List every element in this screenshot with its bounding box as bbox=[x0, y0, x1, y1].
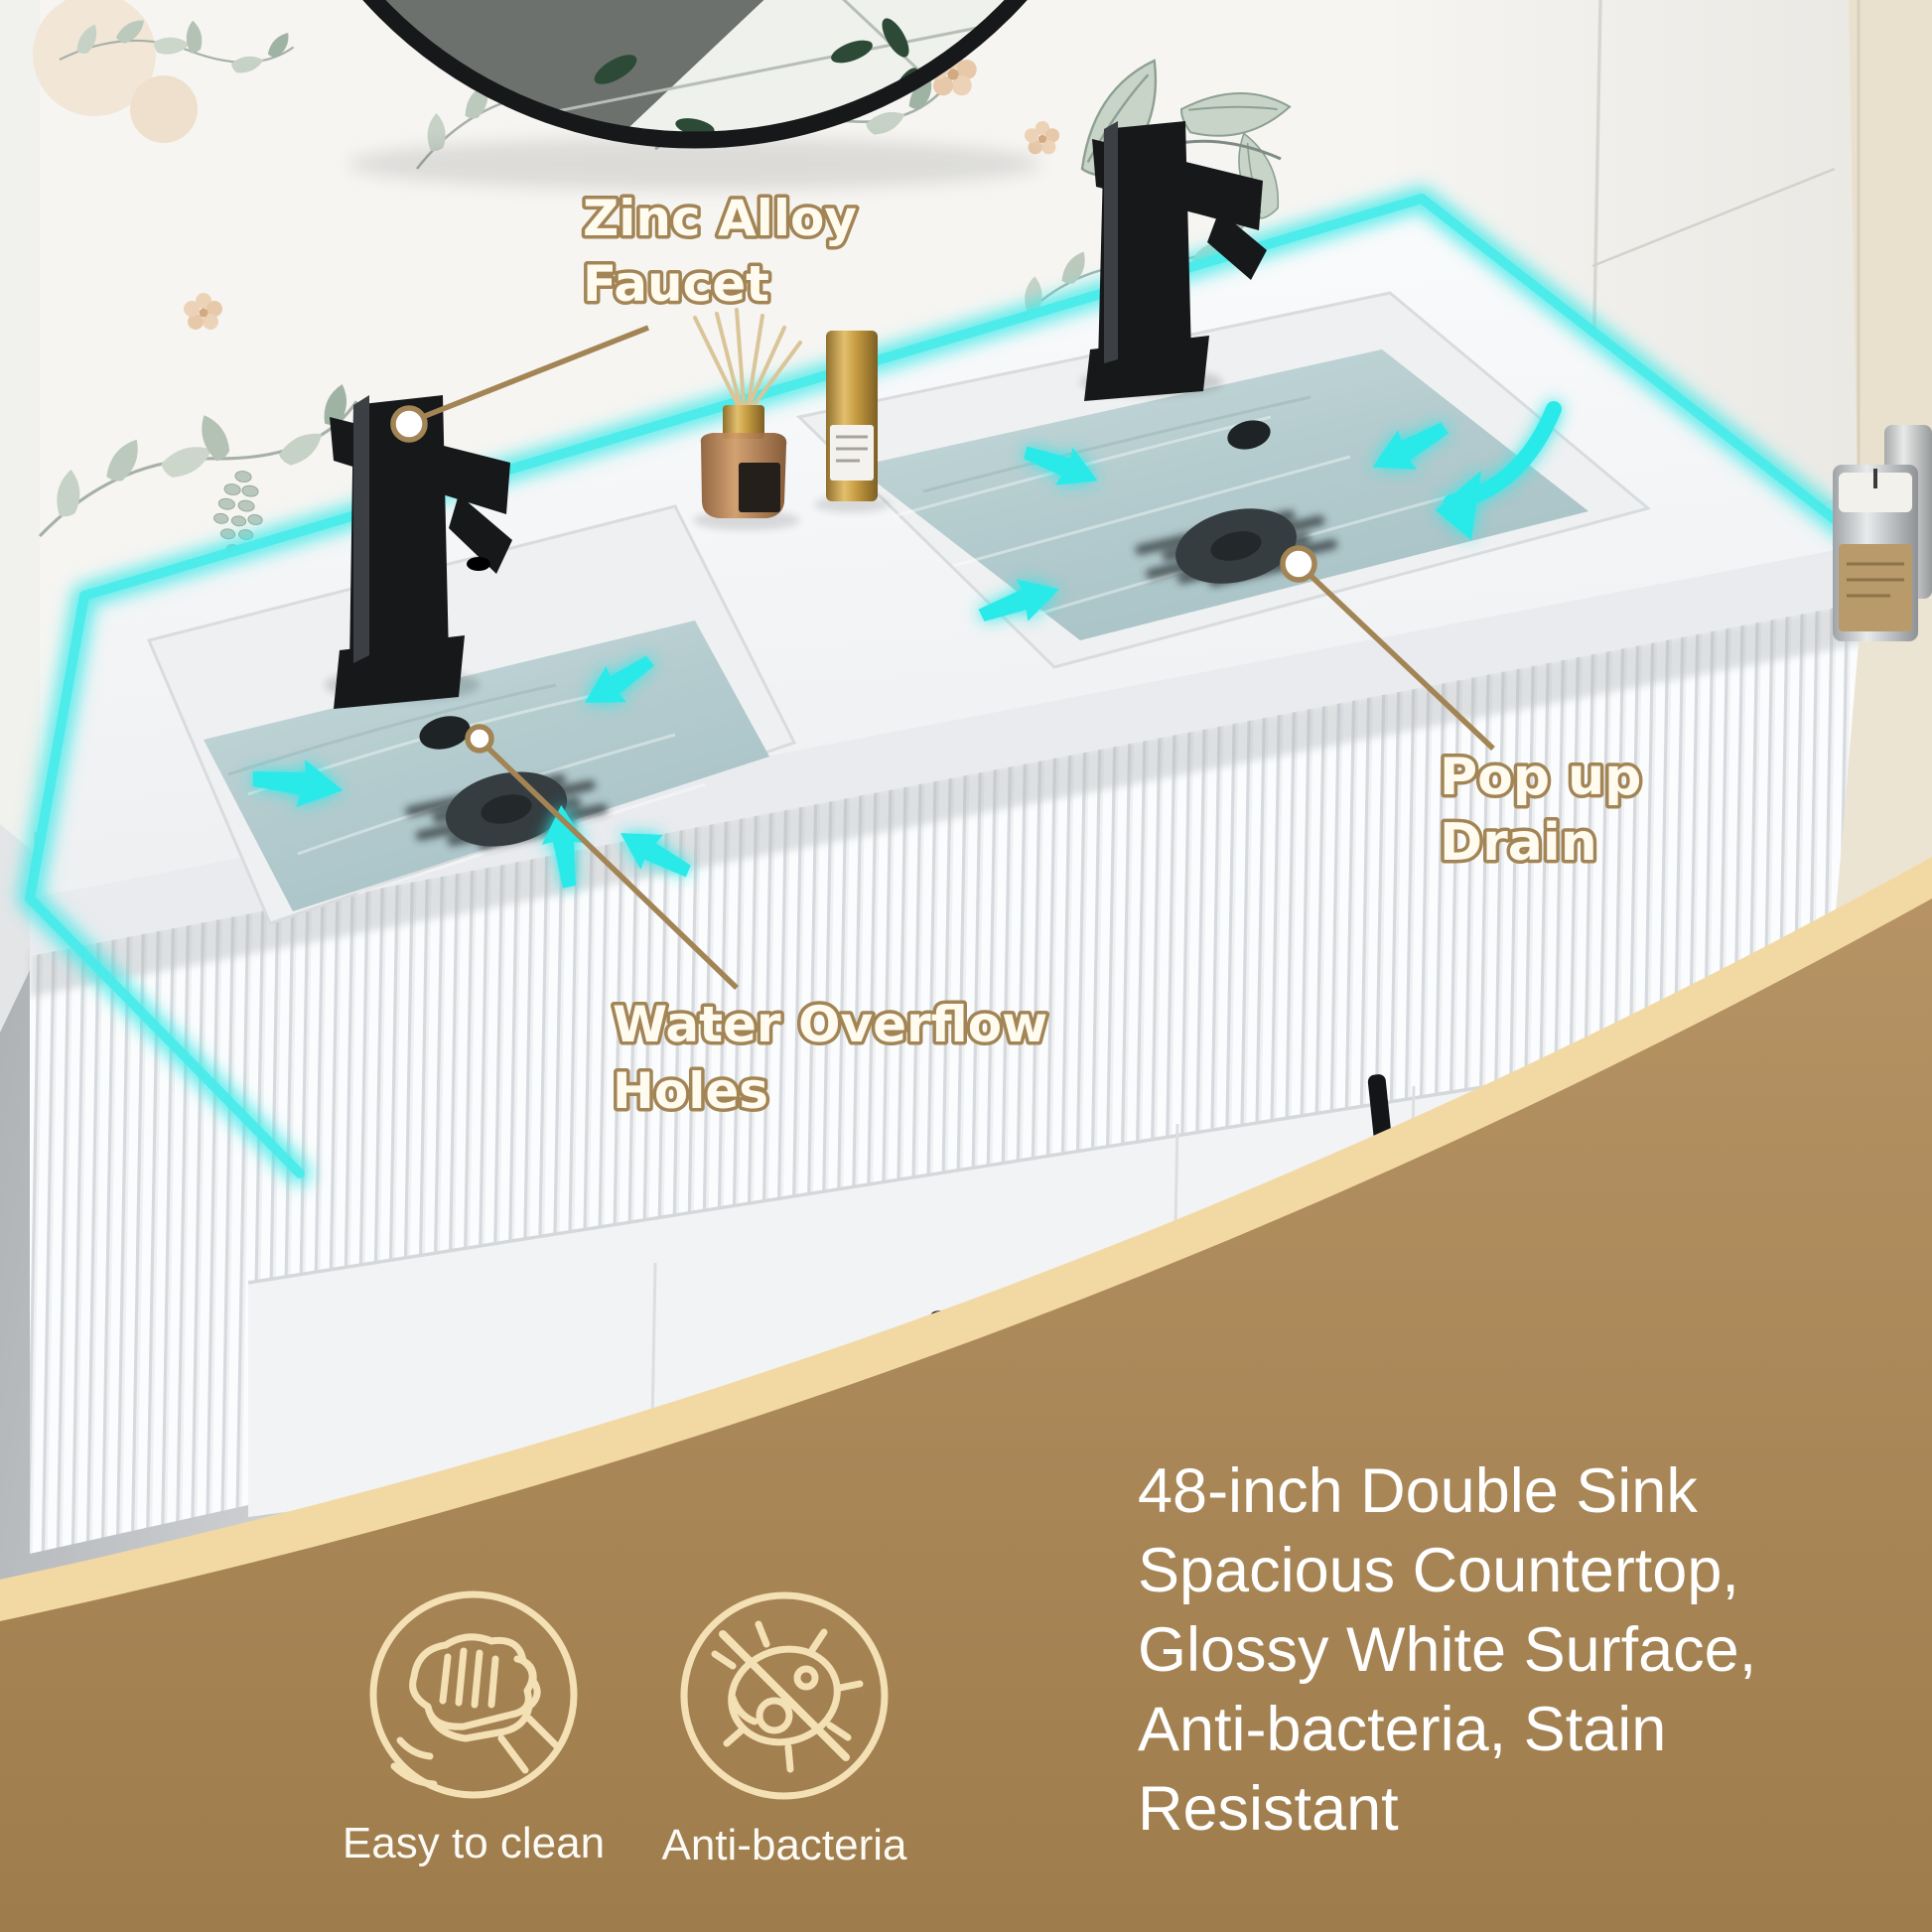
drain-label-line1: Pop up bbox=[1440, 748, 1641, 807]
faucet-label-line2: Faucet bbox=[583, 255, 769, 313]
drain-label-line2: Drain bbox=[1440, 813, 1597, 873]
overflow-label-line2: Holes bbox=[613, 1062, 768, 1120]
badge-label-anti-bacteria: Anti-bacteria bbox=[576, 1821, 993, 1870]
overflow-label-line1: Water Overflow bbox=[613, 996, 1047, 1053]
diffuser-label bbox=[739, 463, 780, 512]
candle-label bbox=[1839, 544, 1912, 631]
feature-description: 48-inch Double Sink Spacious Countertop,… bbox=[1138, 1451, 1892, 1849]
product-image: Zinc Alloy Faucet Water Overflow Holes P… bbox=[0, 0, 1932, 1932]
faucet-callout-dot bbox=[393, 408, 425, 440]
drain-callout-dot bbox=[1283, 548, 1314, 580]
overflow-callout-dot bbox=[468, 727, 491, 751]
faucet-label-line1: Zinc Alloy bbox=[583, 190, 857, 247]
